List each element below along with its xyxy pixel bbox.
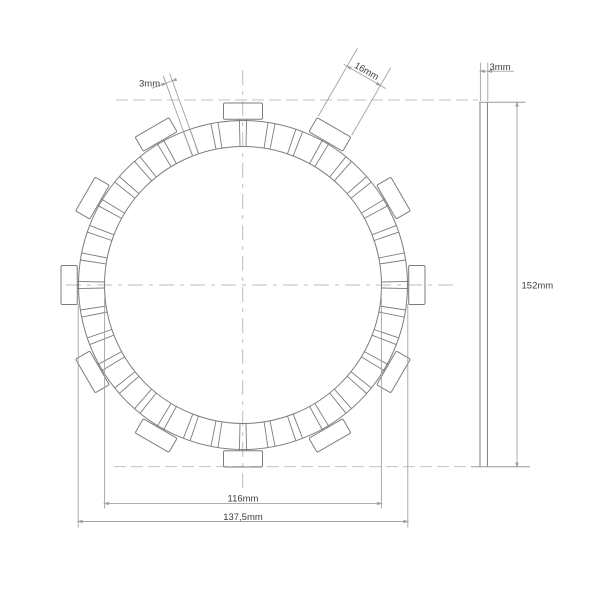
svg-text:137,5mm: 137,5mm <box>223 512 263 523</box>
svg-text:3mm: 3mm <box>490 62 511 73</box>
svg-text:152mm: 152mm <box>522 281 554 292</box>
svg-text:116mm: 116mm <box>228 494 259 505</box>
svg-text:3mm: 3mm <box>139 79 160 90</box>
